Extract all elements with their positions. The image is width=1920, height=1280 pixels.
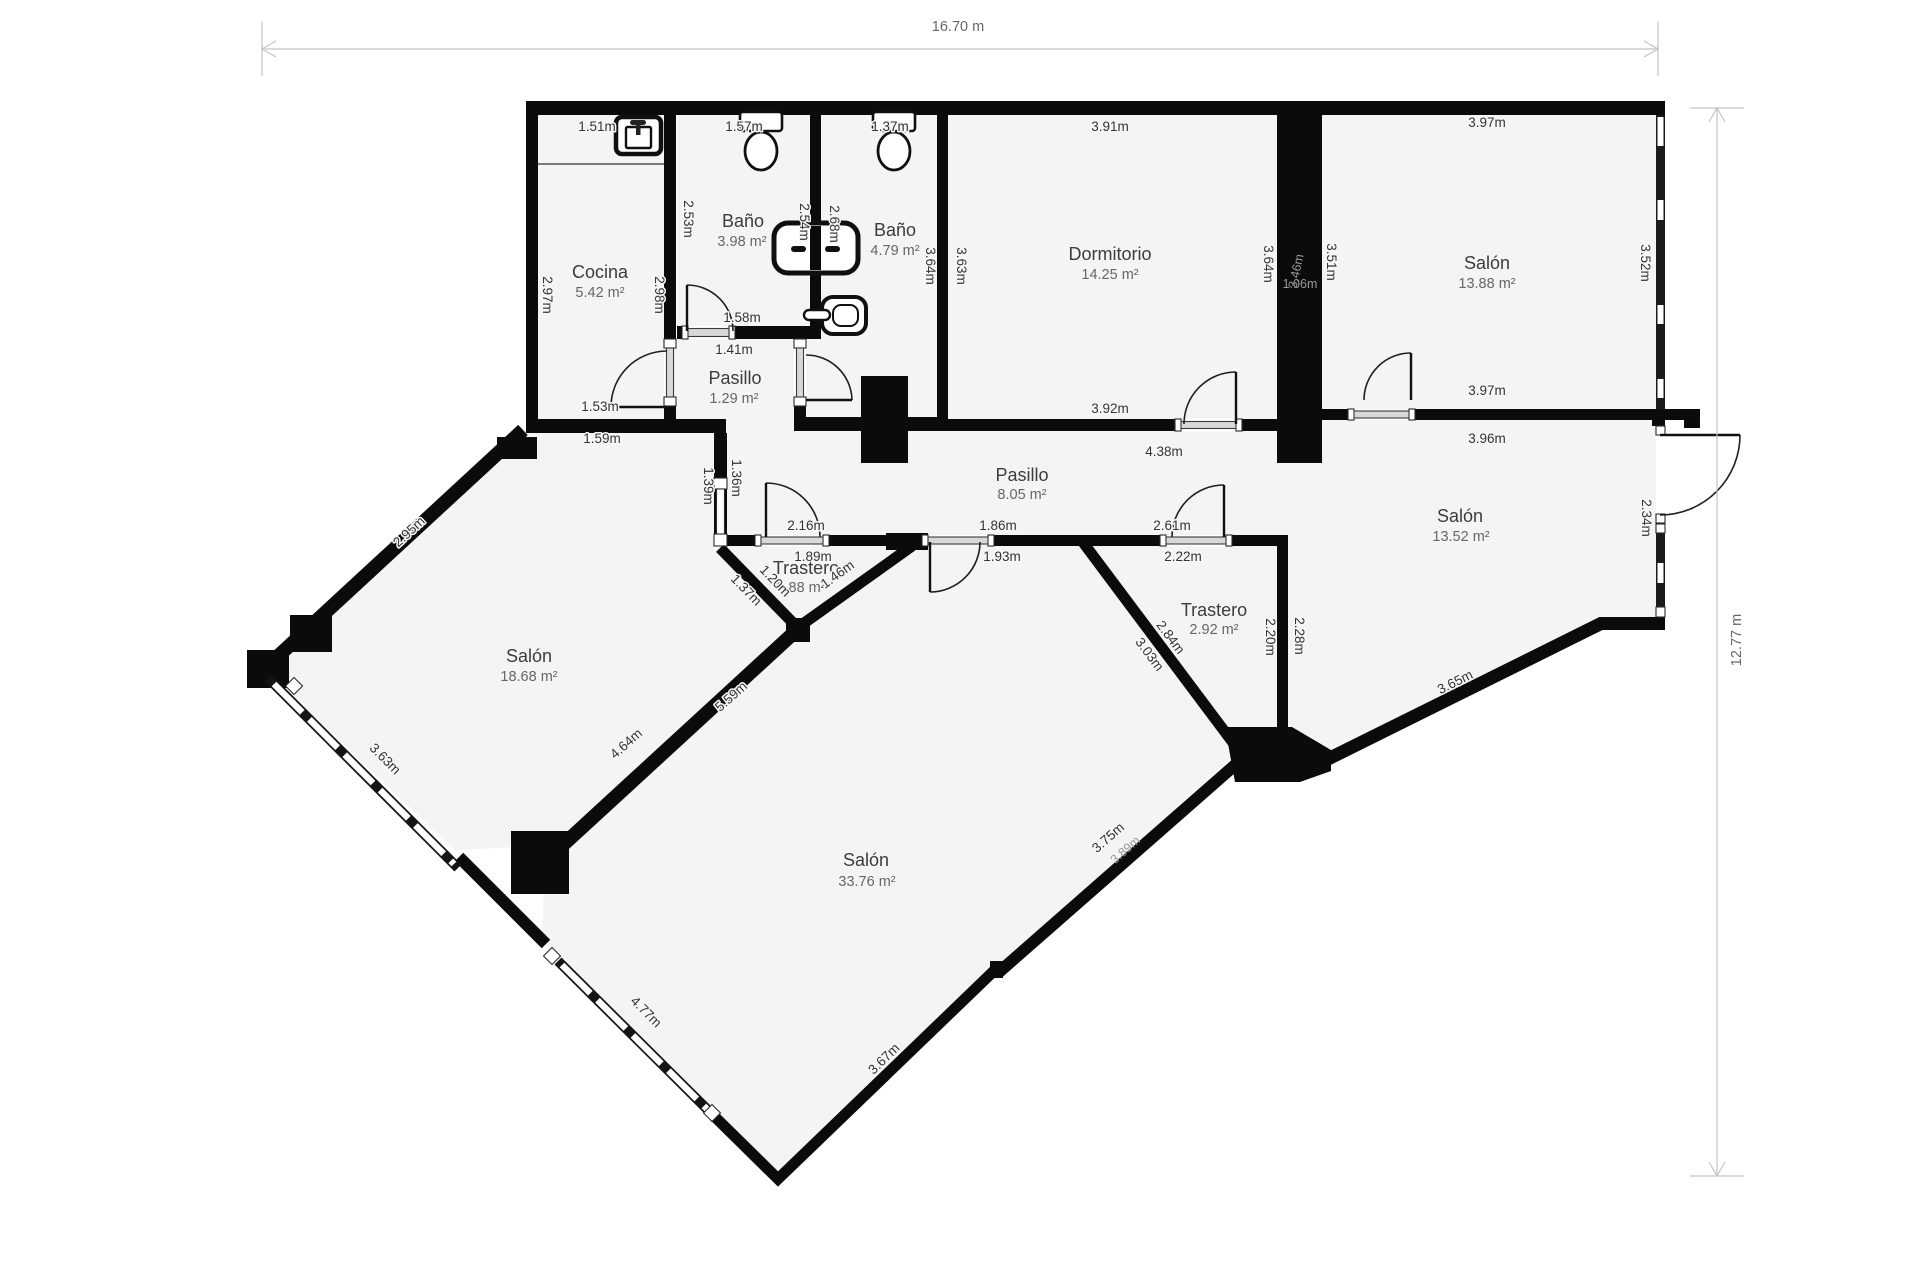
svg-text:5.42 m²: 5.42 m²: [575, 285, 624, 301]
svg-text:1.53m: 1.53m: [581, 399, 619, 414]
svg-text:33.76 m²: 33.76 m²: [838, 874, 895, 890]
svg-text:2.97m: 2.97m: [540, 276, 555, 314]
svg-text:18.68 m²: 18.68 m²: [500, 669, 557, 685]
svg-text:3.92m: 3.92m: [1091, 401, 1129, 416]
svg-text:3.97m: 3.97m: [1468, 115, 1506, 130]
svg-text:3.96m: 3.96m: [1468, 431, 1506, 446]
svg-text:Salón: Salón: [843, 850, 889, 870]
svg-text:Salón: Salón: [1464, 253, 1510, 273]
svg-text:1.51m: 1.51m: [578, 119, 616, 134]
svg-text:2.16m: 2.16m: [787, 518, 825, 533]
svg-text:1.93m: 1.93m: [983, 549, 1021, 564]
svg-text:3.64m: 3.64m: [923, 247, 938, 285]
svg-text:3.91m: 3.91m: [1091, 119, 1129, 134]
svg-text:3.98 m²: 3.98 m²: [717, 234, 766, 250]
svg-text:1.57m: 1.57m: [725, 119, 763, 134]
svg-text:1.36m: 1.36m: [729, 459, 744, 497]
svg-text:1.39m: 1.39m: [701, 467, 716, 505]
svg-text:3.63m: 3.63m: [954, 247, 969, 285]
svg-text:2.53m: 2.53m: [681, 200, 696, 238]
svg-text:Salón: Salón: [506, 646, 552, 666]
svg-text:2.22m: 2.22m: [1164, 549, 1202, 564]
svg-text:Baño: Baño: [722, 211, 764, 231]
svg-text:1.58m: 1.58m: [723, 310, 761, 325]
svg-text:3.52m: 3.52m: [1638, 244, 1653, 282]
svg-text:Pasillo: Pasillo: [708, 368, 761, 388]
svg-text:3.97m: 3.97m: [1468, 383, 1506, 398]
svg-text:3.51m: 3.51m: [1324, 243, 1339, 281]
svg-text:2.98m: 2.98m: [652, 276, 667, 314]
svg-text:1.41m: 1.41m: [715, 342, 753, 357]
svg-text:Trastero: Trastero: [1181, 600, 1247, 620]
svg-text:16.70 m: 16.70 m: [932, 19, 984, 35]
svg-text:Dormitorio: Dormitorio: [1068, 244, 1151, 264]
svg-text:4.38m: 4.38m: [1145, 444, 1183, 459]
svg-text:Salón: Salón: [1437, 506, 1483, 526]
svg-text:13.88 m²: 13.88 m²: [1458, 276, 1515, 292]
svg-text:2.54m: 2.54m: [797, 203, 812, 241]
svg-text:Pasillo: Pasillo: [995, 465, 1048, 485]
svg-text:1.06m: 1.06m: [1283, 277, 1318, 291]
svg-text:12.77 m: 12.77 m: [1729, 614, 1745, 666]
svg-text:1.29 m²: 1.29 m²: [709, 391, 758, 407]
svg-text:2.61m: 2.61m: [1153, 518, 1191, 533]
svg-text:2.92 m²: 2.92 m²: [1189, 622, 1238, 638]
svg-text:1.59m: 1.59m: [583, 431, 621, 446]
svg-text:13.52 m²: 13.52 m²: [1432, 529, 1489, 545]
svg-text:2.68m: 2.68m: [827, 205, 842, 243]
svg-text:1.86m: 1.86m: [979, 518, 1017, 533]
svg-text:3.64m: 3.64m: [1261, 245, 1276, 283]
svg-text:Baño: Baño: [874, 220, 916, 240]
svg-text:2.34m: 2.34m: [1639, 499, 1654, 537]
svg-text:2.28m: 2.28m: [1292, 617, 1307, 655]
svg-text:2.20m: 2.20m: [1263, 618, 1278, 656]
svg-text:1.37m: 1.37m: [871, 119, 909, 134]
svg-text:4.79 m²: 4.79 m²: [870, 243, 919, 259]
svg-text:14.25 m²: 14.25 m²: [1081, 267, 1138, 283]
svg-text:Cocina: Cocina: [572, 262, 629, 282]
svg-text:8.05 m²: 8.05 m²: [997, 487, 1046, 503]
